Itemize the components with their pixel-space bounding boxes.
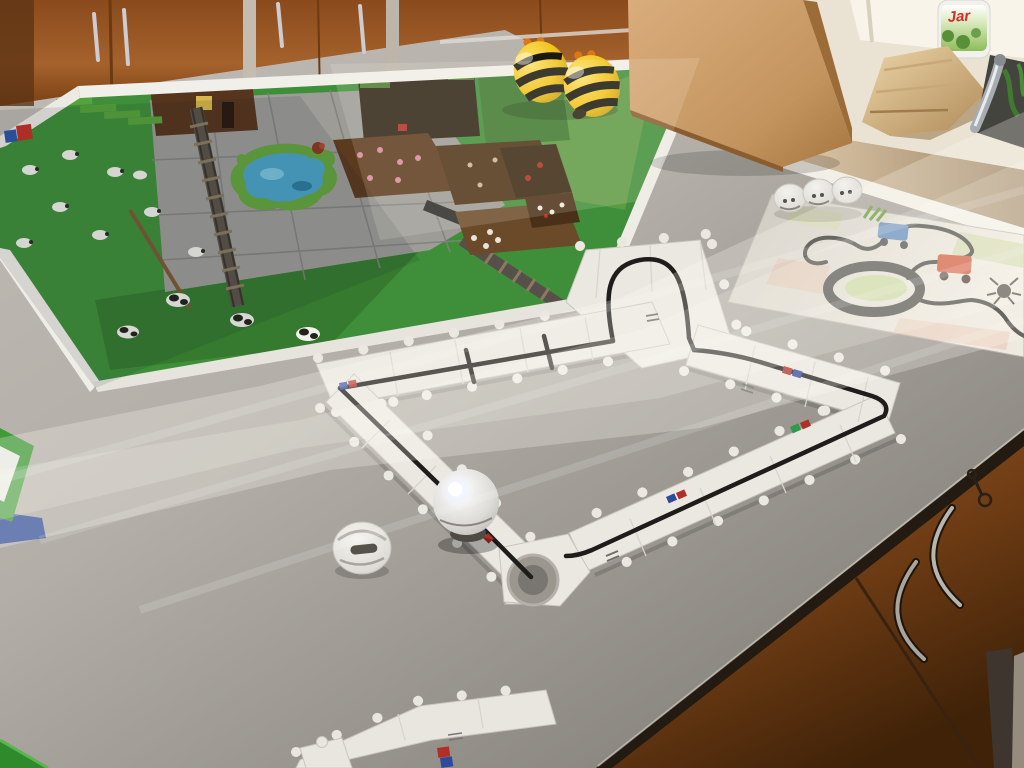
floor-corner bbox=[1012, 652, 1024, 768]
loose-piece-code bbox=[437, 746, 450, 758]
ozobot-led bbox=[448, 482, 462, 496]
photo-classroom-robotics: Jar bbox=[0, 0, 1024, 768]
photo-canvas: Jar bbox=[0, 0, 1024, 768]
ozobot-skin bbox=[774, 184, 806, 212]
jar-label-text: Jar bbox=[947, 7, 972, 26]
